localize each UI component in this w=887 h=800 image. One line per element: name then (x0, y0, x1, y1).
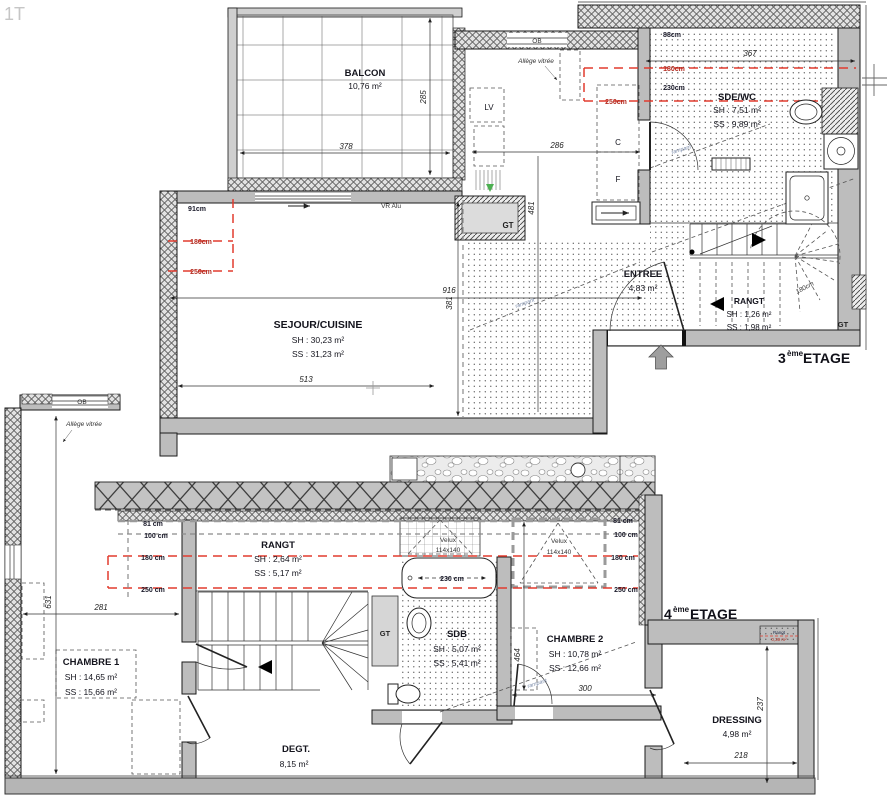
room-sh-rangt4: SH : 2,64 m² (254, 554, 302, 564)
room-label-chambre1: CHAMBRE 1 (63, 657, 120, 668)
room-label-sejour: SEJOUR/CUISINE (274, 319, 363, 331)
room-sh-chambre1: SH : 14,65 m² (65, 672, 118, 682)
h100-left: 100 cm (144, 533, 168, 540)
floor4-stairs (198, 592, 368, 690)
stair-direction-arrow (752, 233, 766, 247)
dim-286: 286 (549, 141, 564, 150)
room-area-balcon: 10,76 m² (348, 81, 382, 91)
room-ss-rangt4: SS : 5,17 m² (254, 568, 301, 578)
room-area-dressing: 4,98 m² (723, 729, 752, 739)
dim-balcon-width: 378 (339, 142, 353, 151)
gt-label-corner: GT (838, 320, 849, 329)
floor4-title: 4 ème ETAGE (664, 605, 737, 622)
velux2-line1: Velux (551, 538, 568, 545)
room-label-entree: ENTREE (624, 269, 663, 280)
sdb-door-leaf (410, 722, 442, 764)
room-sh-sdb: SH : 5,07 m² (433, 644, 481, 654)
dim-513: 513 (299, 375, 313, 384)
height-230-sde: 230cm (663, 85, 685, 92)
window-ob-label-4: OB (77, 399, 86, 406)
room-label-balcon: BALCON (345, 68, 386, 79)
appliance-c: C (615, 138, 621, 147)
velux1-line2: 114x140 (436, 547, 461, 554)
allege-vitree-label-4: Allège vitrée (65, 421, 102, 428)
plan-code: 1T (4, 4, 25, 24)
floor4-title-word: ETAGE (690, 606, 737, 622)
h250-left: 250 cm (141, 587, 165, 594)
tub-length: 230 cm (440, 576, 464, 583)
height-180-sde: 180cm (663, 66, 685, 73)
floor3-title: 3 ème ETAGE (778, 349, 850, 366)
rangt4-door-leaf (196, 644, 247, 667)
sdb-wc (396, 685, 420, 703)
dim-381: 381 (445, 296, 454, 309)
room-ss-sde: SS : 9,89 m² (713, 119, 760, 129)
floor4-title-sup: ème (673, 605, 690, 614)
slope-label-4: rampant (527, 678, 548, 690)
room-label-sde: SDE/WC (718, 92, 756, 103)
dim-88cm: 88cm (663, 32, 681, 39)
room-sh-rangt3: SH : 1,26 m² (727, 310, 772, 319)
h250-right: 250 cm (614, 587, 638, 594)
room-ss-sejour: SS : 31,23 m² (292, 349, 344, 359)
appliance-lv: LV (484, 103, 494, 112)
window-ob-label: OB (532, 38, 541, 45)
h180-right: 180 cm (611, 555, 635, 562)
sink-marker (486, 184, 494, 192)
allege-vitree-label: Allège vitrée (517, 58, 554, 65)
vanity-counter (822, 88, 858, 134)
velux1-line1: Velux (440, 537, 457, 544)
room-area-entree: 4,83 m² (629, 283, 658, 293)
dim-91cm: 91cm (188, 206, 206, 213)
niche-label-1: Rangt (773, 630, 786, 635)
gt-duct-kitchen: GT (455, 196, 525, 240)
room-label-chambre2: CHAMBRE 2 (547, 634, 603, 645)
room-label-rangt4: RANGT (261, 540, 295, 551)
h81-right: 81 cm (613, 518, 633, 525)
dim-481: 481 (527, 201, 536, 214)
appliance-f: F (616, 175, 621, 184)
dim-281: 281 (93, 603, 107, 612)
floor3-title-word: ETAGE (803, 350, 850, 366)
velux2-line2: 114x140 (547, 549, 572, 556)
room-label-dressing: DRESSING (712, 715, 762, 726)
niche-label-2: 0,39 m² (771, 637, 787, 642)
rangt-arrow (710, 297, 724, 311)
room-ss-chambre1: SS : 15,66 m² (65, 687, 117, 697)
room-label-rangt3: RANGT (734, 296, 765, 306)
height-250-sejour: 250cm (190, 269, 212, 276)
room-label-sdb: SDB (447, 629, 467, 640)
h100-right: 100 cm (614, 532, 638, 539)
room-sh-sde: SH : 7,51 m² (713, 105, 761, 115)
vr-alu-label: VR Alu (381, 203, 401, 210)
stair-height-180: 180cm (795, 280, 816, 296)
room-label-degt: DEGT. (282, 744, 310, 755)
room-area-degt: 8,15 m² (280, 759, 309, 769)
room-ss-rangt3: SS : 1,98 m² (727, 323, 772, 332)
floorplan-page: 1T 378 285 BALCON 10,76 m² GT (0, 0, 887, 800)
balcony: 378 285 BALCON 10,76 m² (228, 8, 465, 191)
velux-chambre2: Velux 114x140 (513, 519, 605, 587)
dim-balcon-height: 285 (419, 90, 428, 105)
floor4-title-num: 4 (664, 606, 672, 622)
height-180-sejour: 180cm (190, 239, 212, 246)
h180-left: 180 cm (141, 555, 165, 562)
floor3-title-num: 3 (778, 350, 786, 366)
dim-631: 631 (44, 595, 53, 608)
gt-label-kitchen: GT (502, 221, 513, 230)
dim-218: 218 (733, 751, 748, 760)
floorplan-drawing: 1T 378 285 BALCON 10,76 m² GT (0, 0, 887, 800)
dim-464: 464 (513, 648, 522, 662)
height-250-sde: 250cm (605, 99, 627, 106)
room-ss-sdb: SS : 5,41 m² (433, 658, 480, 668)
dim-237: 237 (756, 697, 765, 712)
h81-left: 81 cm (143, 521, 163, 528)
floor3-title-sup: ème (787, 349, 804, 358)
kitchen-counters: LV C F (470, 50, 639, 200)
room-sh-sejour: SH : 30,23 m² (292, 335, 345, 345)
gt-label-sdb: GT (380, 629, 391, 638)
dim-300: 300 (578, 684, 592, 693)
room-ss-chambre2: SS : 12,66 m² (549, 663, 601, 673)
dim-916: 916 (442, 286, 456, 295)
chambre1-door-leaf (188, 696, 210, 738)
dim-367: 367 (743, 49, 757, 58)
room-sh-chambre2: SH : 10,78 m² (549, 649, 602, 659)
entry-arrow (649, 345, 673, 369)
